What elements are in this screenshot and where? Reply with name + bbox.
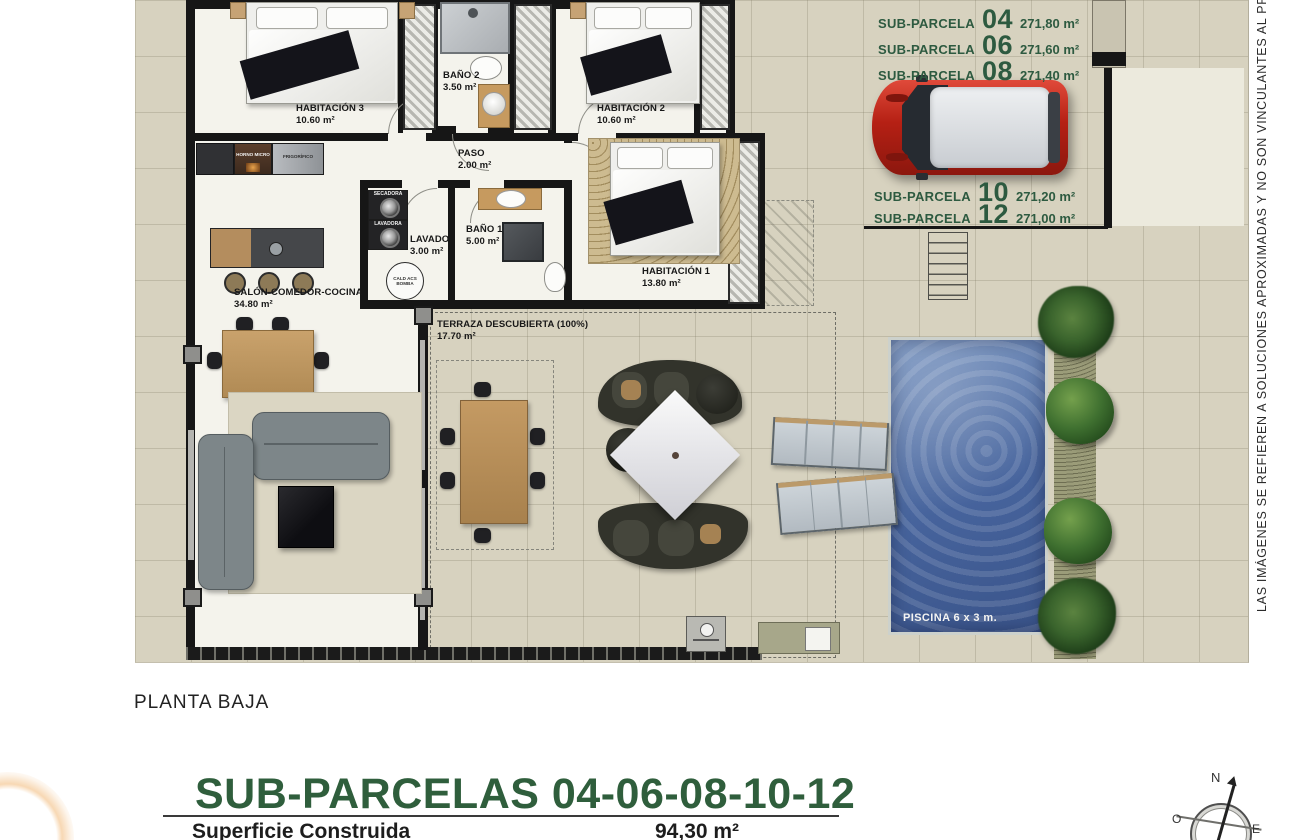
plan-title: PLANTA BAJA — [134, 692, 269, 714]
boundary-wall-right — [1104, 62, 1112, 228]
kitchen-island — [210, 228, 324, 268]
kitchen-sink-unit — [196, 143, 234, 175]
pillow — [256, 7, 318, 29]
terrace-chair — [440, 428, 455, 445]
fridge: FRIGORÍFICO — [272, 143, 324, 175]
floorplan-sheet: PISCINA 6 x 3 m. — [0, 0, 1290, 840]
wall-b1-top — [504, 180, 572, 188]
pool — [888, 337, 1048, 635]
boiler: CALD ACS BOMBA — [386, 262, 424, 300]
dryer-drum — [380, 198, 400, 218]
terrace-chair — [474, 382, 491, 397]
pillow — [594, 7, 641, 29]
nightstand — [570, 2, 586, 19]
label-lavado: LAVADO3.00 m² — [410, 234, 449, 258]
pillow — [667, 147, 712, 169]
car-roof — [930, 87, 1050, 168]
dining-chair — [207, 352, 222, 369]
washer-drum — [380, 228, 400, 248]
utility-meter-box — [686, 616, 726, 652]
sofa-seam — [264, 443, 378, 445]
dining-table — [222, 330, 314, 398]
car-rear-glass — [1048, 92, 1060, 163]
meter-dial — [700, 623, 714, 637]
wardrobe-h2 — [700, 4, 730, 130]
sink-b1 — [496, 190, 526, 208]
coffee-table — [278, 486, 334, 548]
shower-b1 — [502, 222, 544, 262]
label-habitacion3: HABITACIÓN 310.60 m² — [296, 103, 364, 127]
label-habitacion2: HABITACIÓN 210.60 m² — [597, 103, 665, 127]
dryer: SECADORA — [368, 190, 408, 220]
island-wood-top — [211, 229, 251, 267]
surface-value: 94,30 m² — [655, 820, 739, 840]
column-2 — [183, 588, 202, 607]
stair-run — [928, 232, 968, 300]
pool-label: PISCINA 6 x 3 m. — [903, 611, 997, 625]
plant-bush-upper — [1046, 378, 1114, 444]
washer-label: LAVADORA — [369, 222, 407, 228]
compass-needle-tip — [1227, 775, 1239, 786]
nightstand — [399, 2, 415, 19]
sofa-vertical — [198, 434, 254, 590]
disclaimer-vertical-text: LAS IMÁGENES SE REFIEREN A SOLUCIONES AP… — [1255, 0, 1273, 612]
oven-micro: HORNO MICRO — [234, 143, 272, 175]
car-body — [872, 80, 1068, 175]
label-paso: PASO2.00 m² — [458, 148, 491, 172]
compass-n-label: N — [1211, 770, 1220, 785]
compass-o-label: O — [1172, 812, 1181, 826]
pillow — [617, 147, 662, 169]
wardrobe-b2-side — [514, 4, 552, 130]
washer: LAVADORA — [368, 220, 408, 250]
oven-micro-label: HORNO MICRO — [235, 152, 271, 157]
column-1 — [183, 345, 202, 364]
letterbox — [805, 627, 831, 651]
pillow — [700, 524, 721, 544]
wardrobe-h3 — [403, 4, 436, 130]
sink-b2 — [482, 92, 506, 116]
bed-h2 — [586, 2, 700, 104]
label-bano1: BAÑO 15.00 m² — [466, 224, 503, 248]
terrace-chair — [474, 528, 491, 543]
terrace-chair — [530, 428, 545, 445]
pillow — [326, 7, 388, 29]
terrace-chair — [440, 472, 455, 489]
car-headlight-right — [886, 153, 908, 161]
wall-h3-south-a — [186, 133, 388, 141]
dining-chair — [314, 352, 329, 369]
wall-h3-south-b — [426, 133, 556, 141]
terrace-chair — [530, 472, 545, 489]
fridge-label: FRIGORÍFICO — [273, 154, 323, 159]
oven-glow — [246, 163, 260, 172]
sun-lounger-2 — [776, 473, 898, 535]
neighbour-slab — [1112, 68, 1244, 226]
meter-pipe — [693, 639, 719, 641]
toilet-b1 — [544, 262, 566, 292]
label-terraza: TERRAZA DESCUBIERTA (100%)17.70 m² — [437, 319, 588, 343]
sun-lounger-1 — [771, 417, 889, 471]
nightstand — [230, 2, 246, 19]
bed-h1 — [610, 142, 720, 256]
label-habitacion1: HABITACIÓN 113.80 m² — [642, 266, 710, 290]
column-4 — [414, 306, 433, 325]
label-salon: SALÓN-COMEDOR-COCINA34.80 m² — [234, 287, 363, 311]
label-bano2: BAÑO 23.50 m² — [443, 70, 480, 94]
island-sink — [269, 242, 283, 256]
sofa-horizontal — [252, 412, 390, 480]
bed-h3 — [246, 2, 398, 104]
wall-bottom-fence — [186, 647, 762, 660]
boiler-label: CALD ACS BOMBA — [387, 276, 423, 286]
surface-label: Superficie Construida — [192, 820, 410, 840]
wall-h1-west-b — [564, 180, 572, 308]
corner-logo-arc — [0, 772, 74, 840]
car-headlight-left — [886, 94, 908, 102]
footer-rule — [163, 815, 839, 817]
side-table-round — [696, 374, 738, 414]
sofa-seam — [224, 447, 226, 576]
compass-e-label: E — [1252, 822, 1260, 836]
terrace-table — [460, 400, 528, 524]
wall-h1-west-a — [564, 133, 572, 143]
subparcela-row-12: SUB-PARCELA 12 271,00 m² — [874, 199, 1075, 230]
dryer-label: SECADORA — [369, 192, 407, 198]
umbrella-pole — [672, 452, 679, 459]
window-salon-west — [188, 430, 194, 560]
entry-gate-strip — [758, 622, 840, 654]
cushion — [658, 520, 694, 556]
gate-pilaster-cap — [1092, 52, 1126, 66]
wall-lav-top-b — [438, 180, 470, 188]
cushion — [613, 520, 649, 556]
subparcela-row-08: SUB-PARCELA 08 271,40 m² — [878, 56, 1079, 87]
plant-bush-lower — [1044, 498, 1112, 564]
pillow — [645, 7, 692, 29]
pillow — [621, 380, 641, 400]
subparcelas-heading: SUB-PARCELAS 04-06-08-10-12 — [195, 770, 855, 819]
shower-drain-icon — [468, 8, 478, 18]
